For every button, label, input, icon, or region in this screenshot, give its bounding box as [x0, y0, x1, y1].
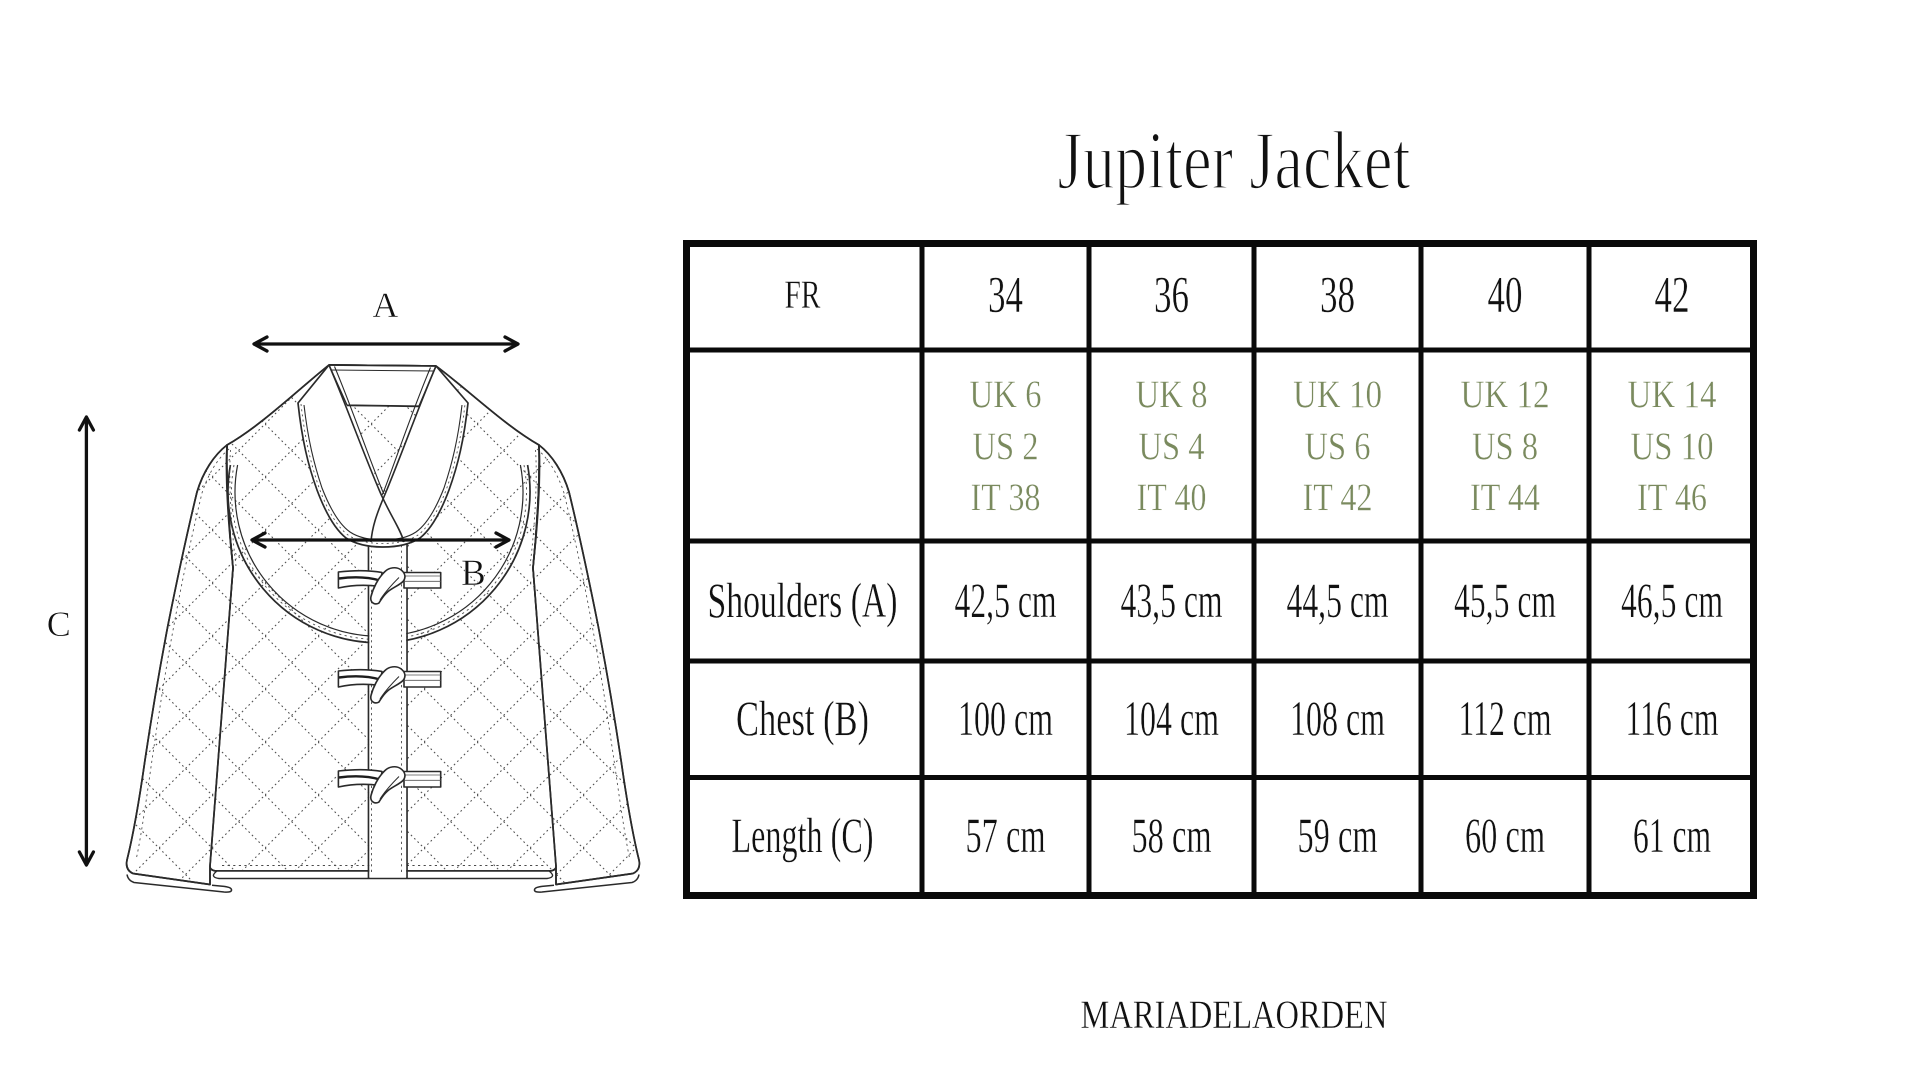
- svg-text:MARIADELAORDEN: MARIADELAORDEN: [1081, 992, 1388, 1037]
- svg-text:UK 6: UK 6: [970, 373, 1042, 416]
- svg-text:UK 8: UK 8: [1136, 373, 1208, 416]
- svg-text:UK 10: UK 10: [1293, 373, 1382, 416]
- svg-text:US 2: US 2: [973, 425, 1039, 468]
- svg-text:43,5 cm: 43,5 cm: [1121, 572, 1223, 628]
- svg-text:IT 44: IT 44: [1470, 476, 1540, 519]
- svg-text:38: 38: [1320, 267, 1355, 324]
- svg-text:112 cm: 112 cm: [1459, 690, 1552, 746]
- svg-text:Shoulders (A): Shoulders (A): [708, 572, 898, 628]
- svg-text:42: 42: [1655, 267, 1690, 324]
- svg-text:104 cm: 104 cm: [1124, 690, 1219, 746]
- svg-text:40: 40: [1488, 267, 1523, 324]
- svg-text:58 cm: 58 cm: [1132, 807, 1212, 863]
- svg-text:US 4: US 4: [1139, 425, 1205, 468]
- svg-text:57 cm: 57 cm: [966, 807, 1046, 863]
- svg-text:46,5 cm: 46,5 cm: [1621, 572, 1723, 628]
- svg-text:100 cm: 100 cm: [958, 690, 1053, 746]
- svg-text:45,5 cm: 45,5 cm: [1454, 572, 1556, 628]
- svg-text:36: 36: [1154, 267, 1189, 324]
- svg-text:FR: FR: [785, 272, 821, 317]
- svg-text:42,5 cm: 42,5 cm: [955, 572, 1057, 628]
- svg-text:US 10: US 10: [1631, 425, 1714, 468]
- svg-text:UK 12: UK 12: [1461, 373, 1550, 416]
- svg-text:US 8: US 8: [1472, 425, 1538, 468]
- svg-text:IT 46: IT 46: [1637, 476, 1707, 519]
- svg-text:Jupiter Jacket: Jupiter Jacket: [1058, 114, 1411, 206]
- svg-text:44,5 cm: 44,5 cm: [1287, 572, 1389, 628]
- svg-text:116 cm: 116 cm: [1626, 690, 1719, 746]
- svg-text:Chest (B): Chest (B): [736, 690, 869, 746]
- svg-text:IT 42: IT 42: [1303, 476, 1373, 519]
- svg-text:UK 14: UK 14: [1628, 373, 1717, 416]
- svg-text:108 cm: 108 cm: [1290, 690, 1385, 746]
- svg-text:US 6: US 6: [1305, 425, 1371, 468]
- svg-text:61 cm: 61 cm: [1633, 807, 1711, 863]
- svg-text:34: 34: [988, 267, 1023, 324]
- svg-text:B: B: [461, 553, 486, 594]
- svg-text:59 cm: 59 cm: [1298, 807, 1378, 863]
- svg-text:IT 38: IT 38: [971, 476, 1041, 519]
- svg-text:60 cm: 60 cm: [1465, 807, 1545, 863]
- svg-text:Length (C): Length (C): [732, 807, 874, 863]
- svg-text:A: A: [372, 285, 398, 325]
- svg-text:IT 40: IT 40: [1137, 476, 1207, 519]
- svg-text:C: C: [47, 604, 71, 644]
